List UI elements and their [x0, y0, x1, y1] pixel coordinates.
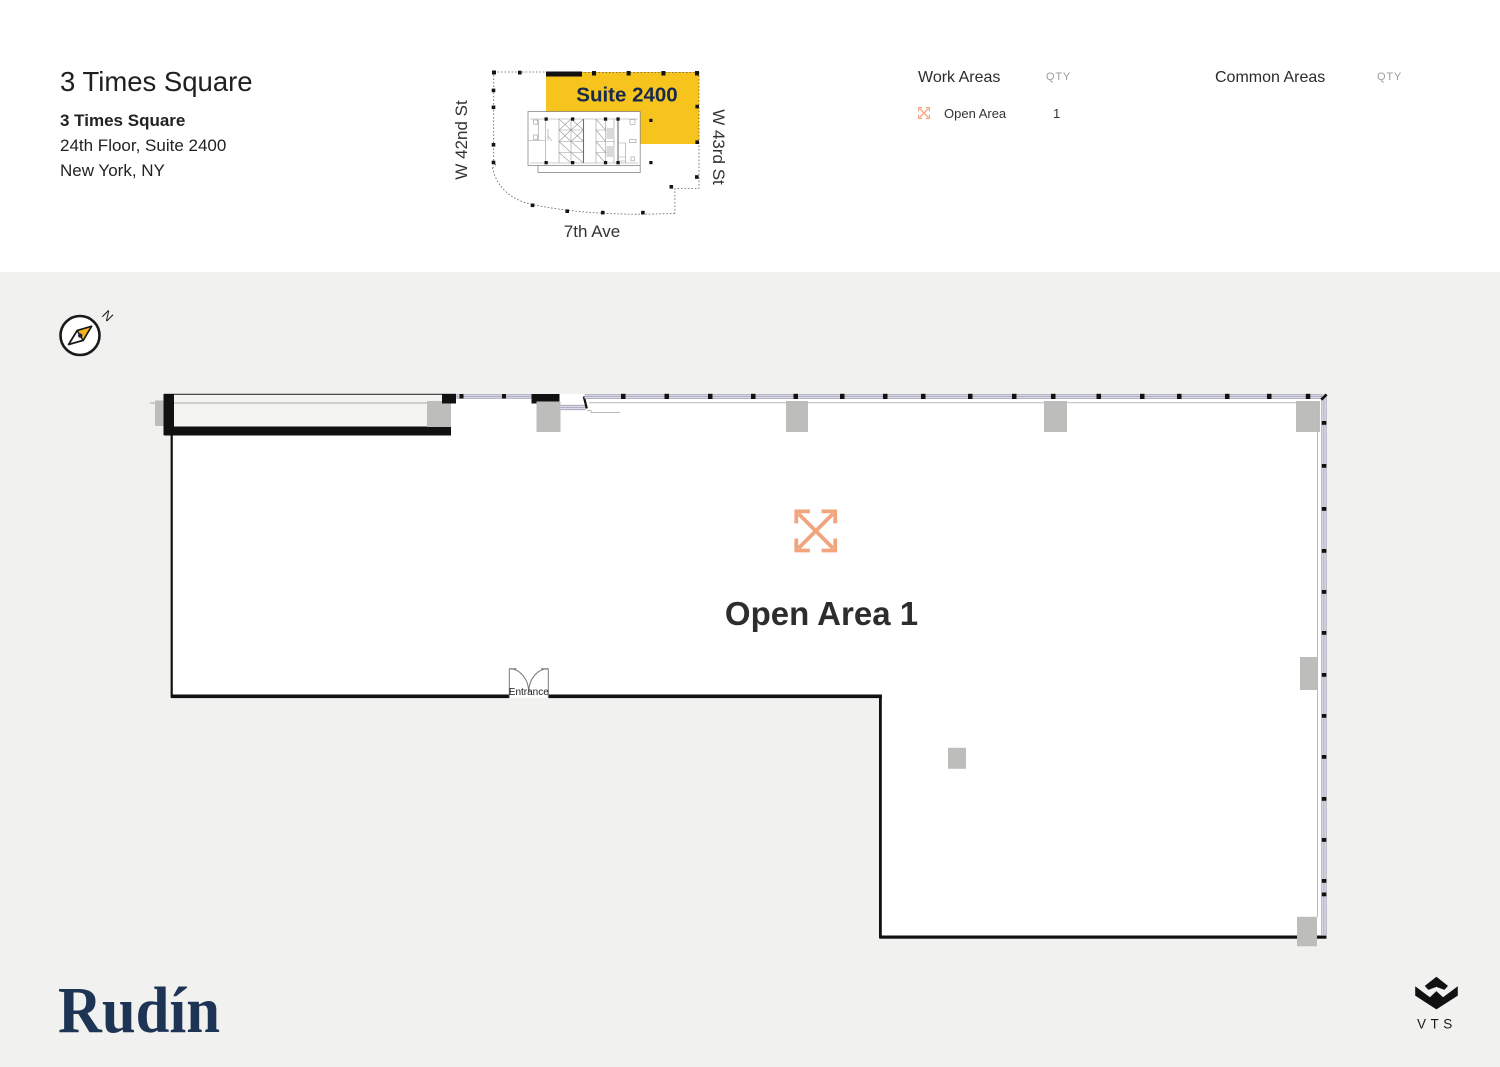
svg-text:N: N — [99, 307, 116, 324]
svg-text:Suite 2400: Suite 2400 — [576, 84, 677, 107]
svg-text:VTS: VTS — [1417, 1017, 1457, 1032]
svg-text:Entrance: Entrance — [509, 687, 549, 698]
svg-text:Open Area 1: Open Area 1 — [725, 595, 918, 632]
